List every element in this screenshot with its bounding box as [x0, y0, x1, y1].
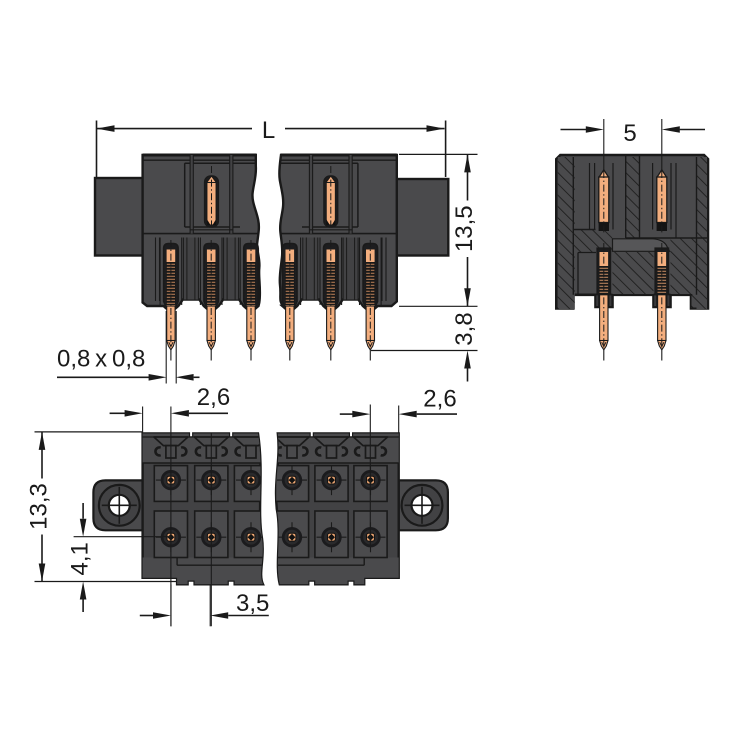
- svg-text:3,5: 3,5: [236, 590, 269, 617]
- svg-text:4,1: 4,1: [67, 542, 94, 575]
- svg-text:13,3: 13,3: [25, 483, 52, 530]
- svg-text:5: 5: [623, 120, 636, 147]
- svg-text:L: L: [262, 117, 275, 144]
- svg-text:3,8: 3,8: [451, 312, 478, 345]
- svg-text:2,6: 2,6: [423, 385, 456, 412]
- svg-text:13,5: 13,5: [451, 205, 478, 252]
- svg-text:0,8 x 0,8: 0,8 x 0,8: [57, 346, 145, 373]
- svg-text:2,6: 2,6: [197, 384, 230, 411]
